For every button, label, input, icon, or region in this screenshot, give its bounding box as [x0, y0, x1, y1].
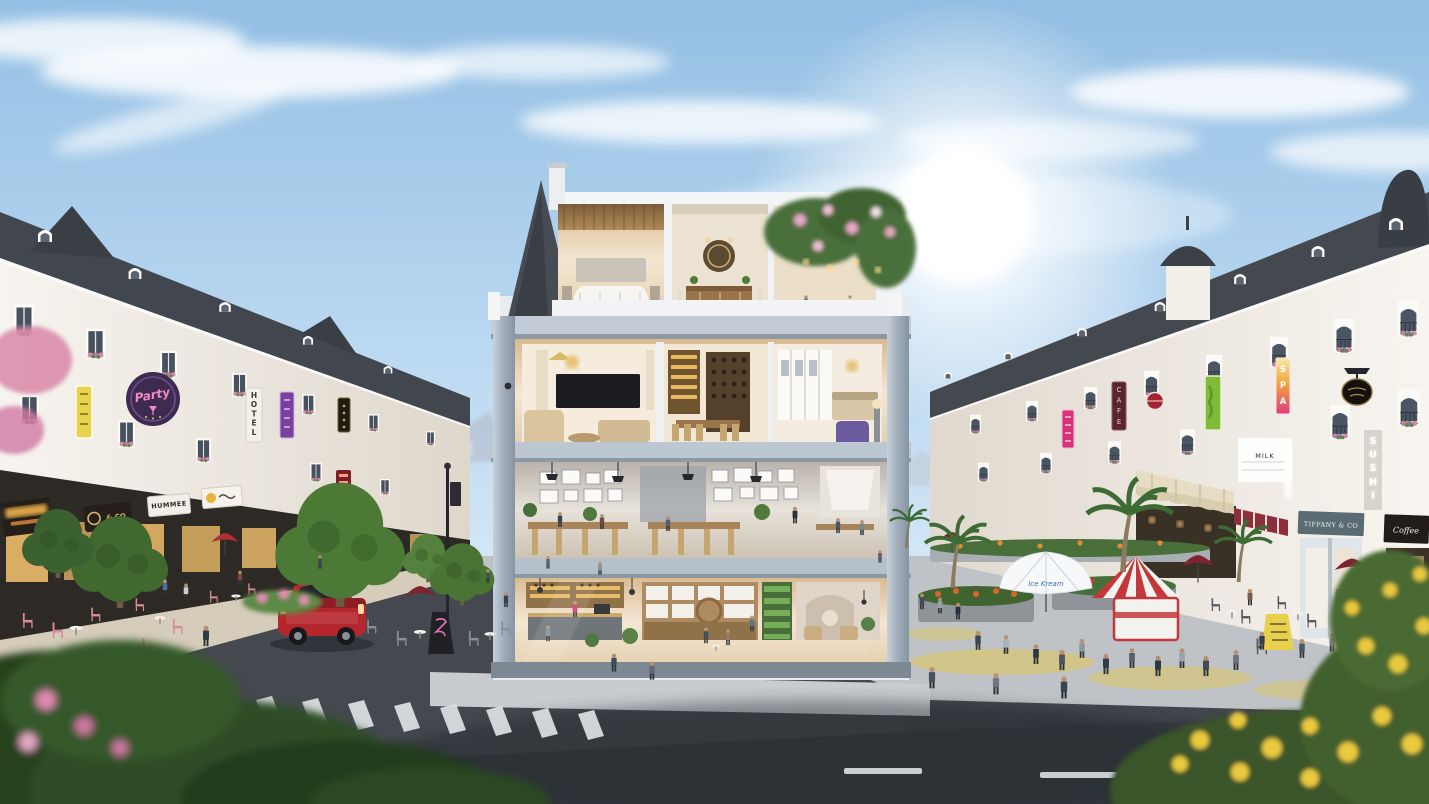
chandelier [846, 360, 858, 372]
base-plinth [491, 662, 911, 678]
cafe-sign: CAFE [1112, 382, 1126, 430]
bambi-sign [201, 485, 243, 508]
frame-column [493, 316, 515, 676]
sofa [524, 410, 564, 442]
cafe-floor [504, 578, 887, 666]
studio-floor [515, 462, 887, 558]
living-floor [515, 339, 887, 445]
party-sign: Party [126, 372, 180, 426]
headboard [576, 258, 646, 282]
coffee-label: Coffee [1393, 526, 1420, 536]
frame-column [887, 316, 909, 676]
dining-wine-room [664, 344, 768, 442]
ice-umbrella-label: Ice Kream [1028, 580, 1064, 588]
spa-sign-label: SPA [1280, 365, 1287, 407]
purple-vertical-sign [280, 392, 294, 438]
purple-sofa [836, 421, 869, 442]
green-vertical-sign [1205, 376, 1221, 430]
hotel-sign: HOTEL [246, 388, 262, 442]
rooftop-terrace [764, 188, 916, 318]
street-render: Party HOTEL & CO HUMMEE [0, 0, 1429, 804]
chandelier [565, 355, 579, 369]
milk-shop-window [1238, 438, 1292, 482]
bed [832, 398, 878, 420]
gold-shelf [668, 350, 700, 414]
tail-light [358, 604, 364, 614]
pink-vertical-sign [1062, 410, 1074, 448]
master-suite [774, 344, 882, 442]
hummee-sign: HUMMEE [147, 493, 191, 517]
red-round-sign [1146, 393, 1164, 410]
chimney [549, 166, 565, 210]
glow-column-sign [1284, 440, 1292, 498]
cart-body [1114, 598, 1178, 640]
sushi-sign: SUSHI [1364, 430, 1382, 510]
stone-pier [640, 466, 706, 522]
milk-label: MILK [1255, 452, 1274, 460]
sofa [598, 420, 650, 442]
rooftop-bedroom [558, 204, 664, 316]
wall-lantern [505, 383, 512, 390]
center-building [488, 163, 916, 680]
side-banner [488, 292, 500, 320]
spa-sign: SPA [1276, 358, 1290, 414]
living-room [522, 344, 656, 443]
tv [556, 374, 640, 408]
